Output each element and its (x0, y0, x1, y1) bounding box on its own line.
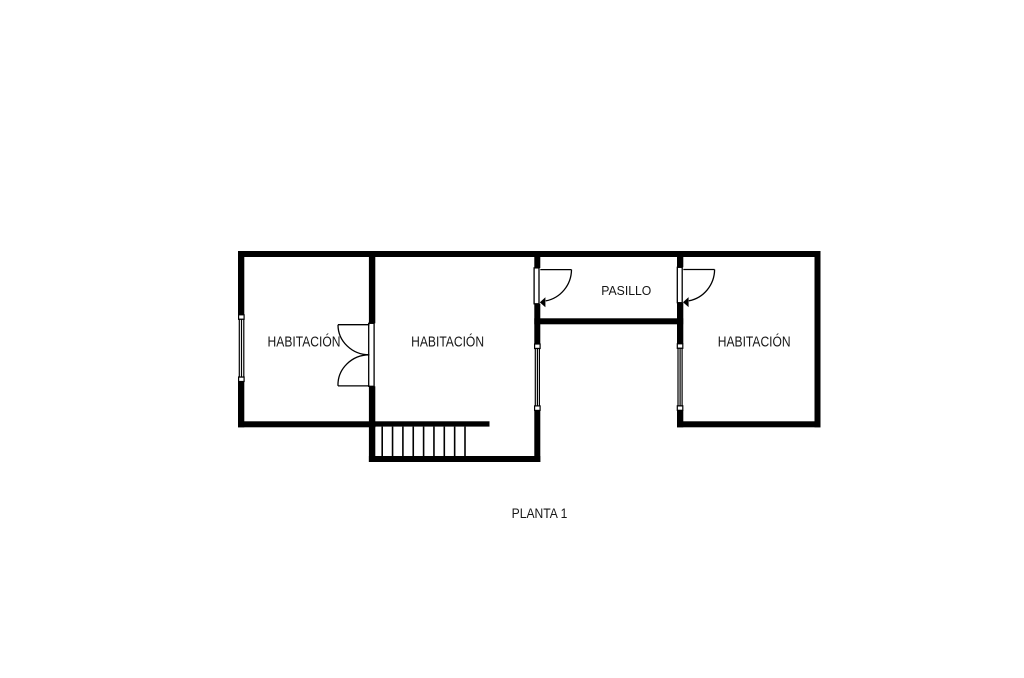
svg-text:HABITACIÓN: HABITACIÓN (268, 334, 341, 351)
svg-text:HABITACIÓN: HABITACIÓN (411, 334, 484, 351)
svg-text:HABITACIÓN: HABITACIÓN (718, 334, 791, 351)
svg-text:PASILLO: PASILLO (601, 283, 651, 298)
svg-text:PLANTA 1: PLANTA 1 (512, 506, 568, 521)
